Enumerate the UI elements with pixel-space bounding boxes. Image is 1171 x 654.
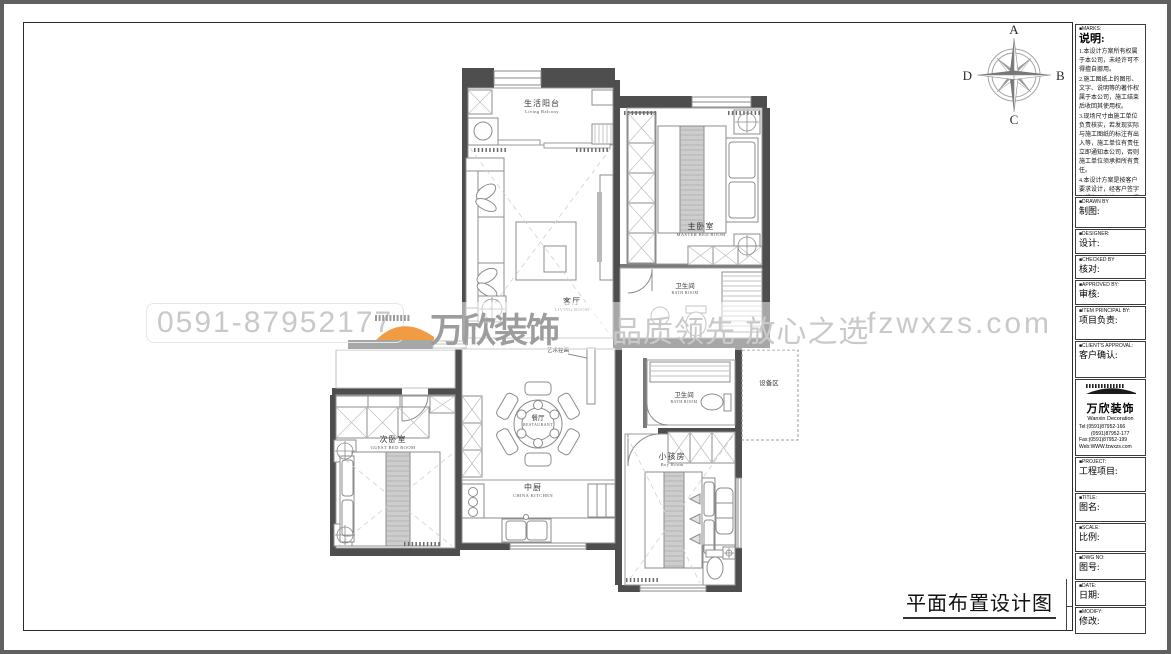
field-scale-tag: ■SCALE: — [1079, 525, 1142, 531]
label-guest-bedroom-zh: 次卧室 — [371, 435, 416, 445]
compass-letter-west: D — [963, 68, 972, 83]
marks-note-4: 4.本设计方案是按客户要求设计，经客户签字即视为同意认可，不得随意更改。 — [1079, 177, 1142, 196]
footer-divider-vertical — [1066, 579, 1067, 631]
label-bath-lower: 卫生间 BATH ROOM — [670, 392, 697, 405]
field-designer-tag: ■DESIGNER: — [1079, 231, 1142, 237]
label-living-balcony: 生活阳台 Living Balcony — [524, 99, 560, 114]
watermark-url: fzwxzs.com — [867, 307, 1052, 341]
field-scale: ■SCALE: 比例: — [1075, 523, 1146, 552]
label-bath-upper: 卫生间 BATH ROOM — [671, 283, 698, 296]
label-master-bedroom: 主卧室 MASTER BED ROOM — [676, 222, 725, 237]
marks-note-2: 2.施工图纸上的图形、文字、说明等的著作权属于本公司，施工结束后收回其使用权。 — [1079, 76, 1142, 112]
compass-rose: A B C D — [963, 22, 1067, 126]
field-approved-by-label: 审核: — [1079, 289, 1142, 300]
field-modify-label: 修改: — [1079, 616, 1142, 627]
company-web: Web:WWW.fzwxzs.com — [1079, 444, 1142, 451]
label-equipment-area-zh: 设备区 — [759, 380, 779, 388]
label-restaurant-en: RESTAURANT — [523, 423, 553, 428]
label-living-balcony-zh: 生活阳台 — [524, 99, 560, 109]
field-client-approval-label: 客户确认: — [1079, 350, 1142, 361]
label-equipment-area: 设备区 — [759, 380, 779, 388]
compass-letter-east: B — [1056, 68, 1065, 83]
drawing-title: 平面布置设计图 — [903, 587, 1056, 619]
company-name-zh: 万欣装饰 — [1079, 400, 1142, 416]
watermark-bridge-icon — [374, 314, 436, 342]
marks-tag: ■MARKS: — [1079, 26, 1142, 32]
watermark-phone: 0591-87952177 — [146, 303, 404, 343]
field-client-approval: ■CLIENT'S APPROVAL: 客户确认: — [1075, 341, 1146, 378]
field-title-label: 图名: — [1079, 502, 1142, 513]
field-drawn-by-tag: ■DRAWN BY — [1079, 199, 1142, 205]
compass-letter-north: A — [1009, 22, 1019, 37]
field-drawn-by: ■DRAWN BY 制图: — [1075, 197, 1146, 228]
field-title: ■TITLE: 图名: — [1075, 493, 1146, 522]
company-name-en: Wanxin Decoration — [1079, 416, 1142, 422]
label-kitchen-zh: 中厨 — [513, 483, 553, 493]
field-checked-by-label: 核对: — [1079, 264, 1142, 275]
label-kitchen-en: CHINA KITCHEN — [513, 493, 553, 498]
marks-note-1: 1.本设计方案所有权属于本公司，未经许可不得擅自挪用。 — [1079, 48, 1142, 75]
field-modify: ■MODIFY: 修改: — [1075, 607, 1146, 634]
label-master-bedroom-en: MASTER BED ROOM — [676, 232, 725, 237]
field-project-tag: ■PROJECT: — [1079, 459, 1142, 465]
field-checked-by-tag: ■CHECKED BY — [1079, 257, 1142, 263]
label-bath-lower-en: BATH ROOM — [670, 400, 697, 405]
field-principal-tag: ■ITEM PRINCIPAL BY: — [1079, 308, 1142, 314]
compass-points — [977, 38, 1051, 112]
field-principal: ■ITEM PRINCIPAL BY: 项目负责: — [1075, 306, 1146, 340]
label-bath-upper-en: BATH ROOM — [671, 291, 698, 296]
field-dwg-no-label: 图号: — [1079, 562, 1142, 573]
field-title-tag: ■TITLE: — [1079, 495, 1142, 501]
label-kids-room-en: Boy Room — [659, 462, 686, 467]
company-bridge-icon — [1084, 383, 1138, 395]
field-approved-by: ■APPROVED BY: 审核: — [1075, 280, 1146, 305]
field-designer: ■DESIGNER: 设计: — [1075, 229, 1146, 254]
watermark-slogan: 品质领先 放心之选 — [612, 307, 869, 351]
field-dwg-no-tag: ■DWG NO: — [1079, 555, 1142, 561]
field-principal-label: 项目负责: — [1079, 315, 1142, 326]
company-block: 万欣装饰 Wanxin Decoration Tel:(0591)87952-1… — [1075, 379, 1146, 456]
field-modify-tag: ■MODIFY: — [1079, 609, 1142, 615]
label-kids-room-zh: 小孩房 — [659, 452, 686, 462]
label-kids-room: 小孩房 Boy Room — [659, 452, 686, 467]
field-drawn-by-label: 制图: — [1079, 206, 1142, 217]
field-project-label: 工程项目: — [1079, 466, 1142, 477]
label-kitchen: 中厨 CHINA KITCHEN — [513, 483, 553, 498]
compass-letter-south: C — [1010, 112, 1019, 126]
label-guest-bedroom-en: GUEST BED ROOM — [371, 445, 416, 450]
field-date-tag: ■DATE: — [1079, 583, 1142, 589]
field-dwg-no: ■DWG NO: 图号: — [1075, 553, 1146, 580]
field-date-label: 日期: — [1079, 590, 1142, 601]
marks-section: ■MARKS: 说明: 1.本设计方案所有权属于本公司，未经许可不得擅自挪用。 … — [1075, 24, 1146, 196]
field-designer-label: 设计: — [1079, 238, 1142, 249]
label-guest-bedroom: 次卧室 GUEST BED ROOM — [371, 435, 416, 450]
title-block: ■MARKS: 说明: 1.本设计方案所有权属于本公司，未经许可不得擅自挪用。 … — [1072, 22, 1148, 631]
field-checked-by: ■CHECKED BY 核对: — [1075, 255, 1146, 279]
field-scale-label: 比例: — [1079, 532, 1142, 543]
drawing-title-text: 平面布置设计图 — [903, 593, 1056, 618]
watermark-brand: 万欣装饰 — [430, 303, 558, 352]
label-restaurant: 餐厅 RESTAURANT — [523, 415, 553, 428]
marks-note-3: 3.现场尺寸由施工单位负责核实，若发现实际与施工图纸的标注有出入等，施工单位有责… — [1079, 113, 1142, 176]
field-approved-by-tag: ■APPROVED BY: — [1079, 282, 1142, 288]
marks-label: 说明: — [1079, 33, 1142, 46]
label-living-balcony-en: Living Balcony — [524, 109, 560, 114]
field-client-approval-tag: ■CLIENT'S APPROVAL: — [1079, 343, 1142, 349]
label-master-bedroom-zh: 主卧室 — [676, 222, 725, 232]
field-project: ■PROJECT: 工程项目: — [1075, 457, 1146, 492]
field-date: ■DATE: 日期: — [1075, 581, 1146, 606]
